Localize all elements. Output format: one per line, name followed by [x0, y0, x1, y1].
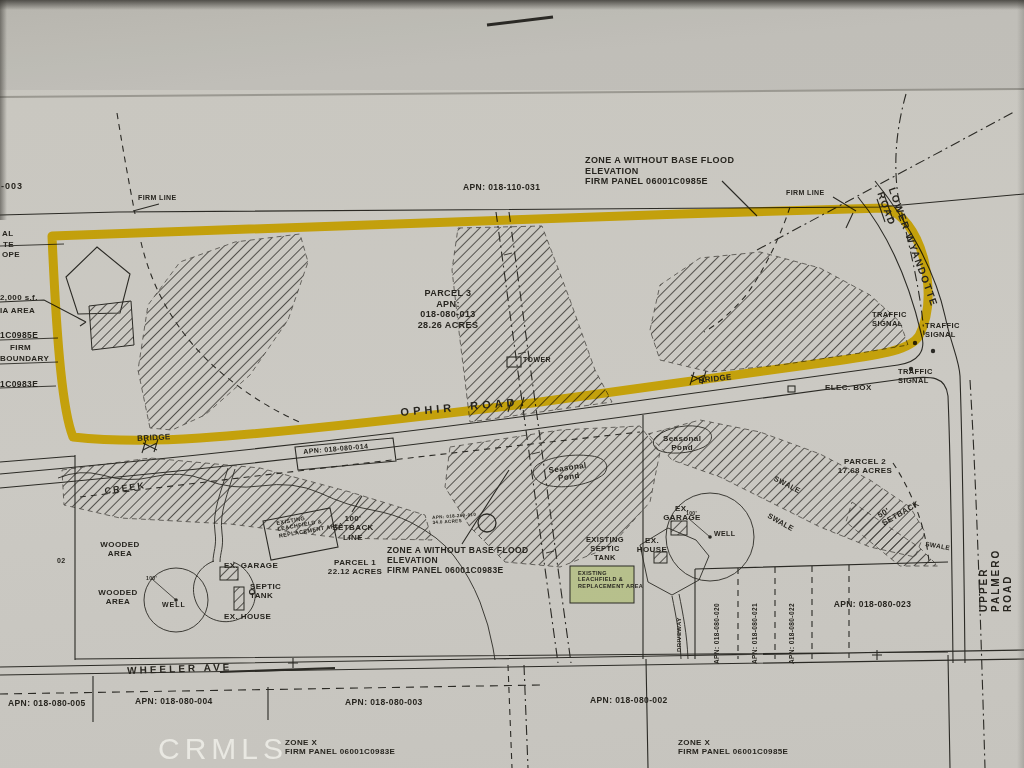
label-bridge-left: BRIDGE: [137, 432, 171, 443]
traffic-signal-dot: [931, 349, 935, 353]
label-apn-005: APN: 018-080-005: [8, 698, 86, 708]
label-well-left: WELL: [162, 601, 186, 609]
label-edge-ope: OPE: [2, 250, 20, 259]
label-elec-box: ELEC. BOX: [825, 383, 872, 392]
label-parcel2: PARCEL 2 17.68 ACRES: [820, 457, 910, 476]
label-apn-022: APN: 018-080-022: [788, 603, 796, 664]
label-edge-panel-0983: 1C0983E: [0, 379, 38, 389]
label-ex-garage-right: EX. GARAGE: [660, 504, 704, 523]
label-ex-house-right: EX. HOUSE: [635, 536, 669, 555]
label-firm-line-left: FIRM LINE: [138, 194, 177, 202]
label-apn-002: APN: 018-080-002: [590, 695, 668, 705]
label-well-right: WELL: [714, 530, 735, 538]
septic-tank-left-symbol: [234, 587, 244, 610]
label-zone-x-left: ZONE X FIRM PANEL 06001C0983E: [285, 738, 395, 757]
label-edge-panel-0985: 1C0985E: [0, 330, 38, 340]
label-apn-003: APN: 018-080-003: [345, 697, 423, 707]
label-ex-house-left: EX. HOUSE: [224, 612, 271, 621]
ex-garage-right-symbol: [671, 521, 687, 535]
label-parcel3: PARCEL 3 APN: 018-080-013 28.26 ACRES: [398, 288, 498, 330]
label-upper-palmero-road: UPPER PALMERO ROAD: [978, 549, 1013, 612]
label-leachfield-right: EXISTING LEACHFIELD & REPLACEMENT AREA: [578, 570, 643, 589]
label-edge-firm: FIRM: [10, 343, 31, 352]
label-existing-septic: EXISTING SEPTIC TANK: [583, 536, 627, 563]
label-tower: TOWER: [523, 356, 551, 364]
label-traffic-signal-2: TRAFFIC SIGNAL: [925, 322, 960, 340]
label-traffic-signal-1: TRAFFIC SIGNAL: [872, 311, 907, 329]
label-edge-003: -003: [1, 181, 23, 192]
label-seasonal-pond-right: Seasonal Pond: [663, 434, 701, 453]
label-apn-020: APN: 018-080-020: [713, 603, 721, 664]
label-edge-al: AL: [2, 229, 13, 238]
crmls-watermark: CRMLS: [158, 734, 288, 764]
label-edge-boundary: BOUNDARY: [0, 354, 49, 363]
label-apn-023: APN: 018-080-023: [820, 599, 925, 609]
label-edge-ia-area: IA AREA: [0, 306, 35, 315]
label-zone-x-right: ZONE X FIRM PANEL 06001C0985E: [678, 738, 788, 757]
pentagon-hatch-square: [89, 301, 134, 350]
label-apn-top: APN: 018-110-031: [463, 182, 540, 192]
label-radius-100-left: 100': [146, 576, 157, 582]
label-wooded-area-2: WOODED AREA: [93, 588, 143, 607]
elec-box-symbol: [788, 386, 795, 392]
label-edge-02: 02: [57, 557, 66, 565]
label-septic-tank-left: SEPTIC TANK: [250, 582, 281, 601]
label-traffic-signal-3: TRAFFIC SIGNAL: [898, 368, 933, 386]
label-radius-100-right: 100': [686, 511, 697, 517]
label-apn-021: APN: 018-080-021: [751, 603, 759, 664]
label-ex-garage-left: EX. GARAGE: [224, 561, 278, 570]
label-edge-sf: 2,000 s.f.: [0, 293, 38, 302]
label-parcel1: PARCEL 1 22.12 ACRES: [320, 558, 390, 577]
label-firm-line-right: FIRM LINE: [786, 189, 825, 197]
label-wooded-area-1: WOODED AREA: [95, 540, 145, 559]
label-driveway: DRIVEWAY: [676, 617, 683, 652]
label-apn-004: APN: 018-080-004: [135, 696, 213, 706]
label-edge-te: TE: [3, 240, 14, 249]
label-zone-a-bottom: ZONE A WITHOUT BASE FLOOD ELEVATION FIRM…: [387, 545, 529, 575]
label-zone-a-top: ZONE A WITHOUT BASE FLOOD ELEVATION FIRM…: [585, 155, 734, 187]
parcel-map-photo: ZONE A WITHOUT BASE FLOOD ELEVATION FIRM…: [0, 0, 1024, 768]
